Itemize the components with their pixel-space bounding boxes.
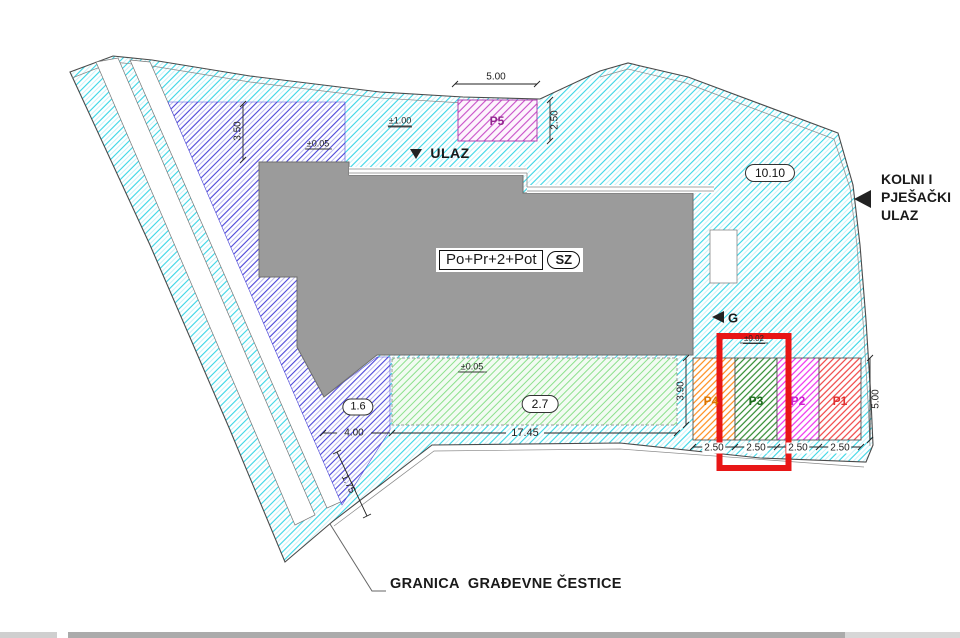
left-zone-badge: 1.6 [342,399,373,416]
dim-stall-width-p4: 2.50 [702,443,725,454]
elevation-terrace: ±0.05 [460,362,484,373]
building-label-box: Po+Pr+2+Pot SZ [436,248,583,272]
garage-label: G [728,311,738,326]
access-label-line2: PJEŠAČKI [881,188,951,206]
dim-stall-width-p2: 2.50 [786,443,809,454]
walkway-strip [527,185,714,193]
area-badge: 10.10 [745,164,795,182]
access-arrow-icon [854,190,871,208]
site-plan-drawing [0,0,960,630]
dim-parking-depth: 5.00 [871,389,882,408]
stall-label-p4: P4 [704,394,719,408]
boundary-label: GRANICA GRAĐEVNE ČESTICE [390,576,622,592]
access-label: KOLNI I PJEŠAČKI ULAZ [881,170,951,224]
horizontal-scrollbar-thumb[interactable] [68,632,845,638]
stall-label-p5: P5 [490,114,505,128]
dim-west-width: 4.00 [344,428,363,439]
dim-terrace-depth: 3.90 [676,381,687,400]
terrace-area [392,358,677,425]
elevation-upper: ±0.05 [306,139,330,150]
dim-stall-width-p1: 2.50 [828,443,851,454]
dim-north-offset: 3.50 [233,121,244,140]
building-label: Po+Pr+2+Pot [439,250,543,270]
scrollbar-track-right[interactable] [845,632,960,638]
parcel-notch [710,230,737,283]
elevation-north: ±1.00 [388,116,412,127]
stall-label-p2: P2 [791,394,806,408]
access-label-line3: ULAZ [881,206,951,224]
elevation-parking: ±0.02 [743,334,765,344]
dim-p5-depth: 2.50 [550,110,561,129]
boundary-leader-line [330,524,386,591]
dim-p5-width: 5.00 [486,72,505,83]
boundary-inner-line-bottom [334,449,864,526]
entrance-label: ULAZ [430,145,469,161]
walkway-strip [349,167,527,175]
orientation-badge: SZ [547,251,580,269]
terrace-badge: 2.7 [522,395,559,413]
dim-stall-width-p3: 2.50 [744,443,767,454]
site-plan-canvas: 5.00 2.50 P5 ±1.00 ULAZ 3.50 ±0.05 Po+Pr… [0,0,960,638]
dim-terrace-length: 17.45 [511,427,539,439]
access-label-line1: KOLNI I [881,170,951,188]
stall-label-p3: P3 [749,394,764,408]
scrollbar-track-left[interactable] [0,632,57,638]
horizontal-scrollbar [0,632,960,638]
stall-label-p1: P1 [833,394,848,408]
